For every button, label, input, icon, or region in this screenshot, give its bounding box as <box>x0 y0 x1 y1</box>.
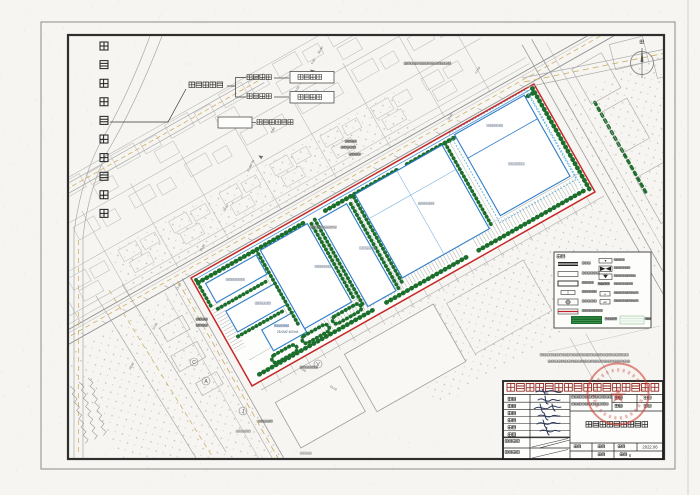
svg-text:a2: a2 <box>603 300 607 304</box>
svg-text:25.0M2 400m3: 25.0M2 400m3 <box>277 330 298 334</box>
svg-text:2022.06: 2022.06 <box>642 445 658 450</box>
svg-text:C: C <box>192 360 196 366</box>
